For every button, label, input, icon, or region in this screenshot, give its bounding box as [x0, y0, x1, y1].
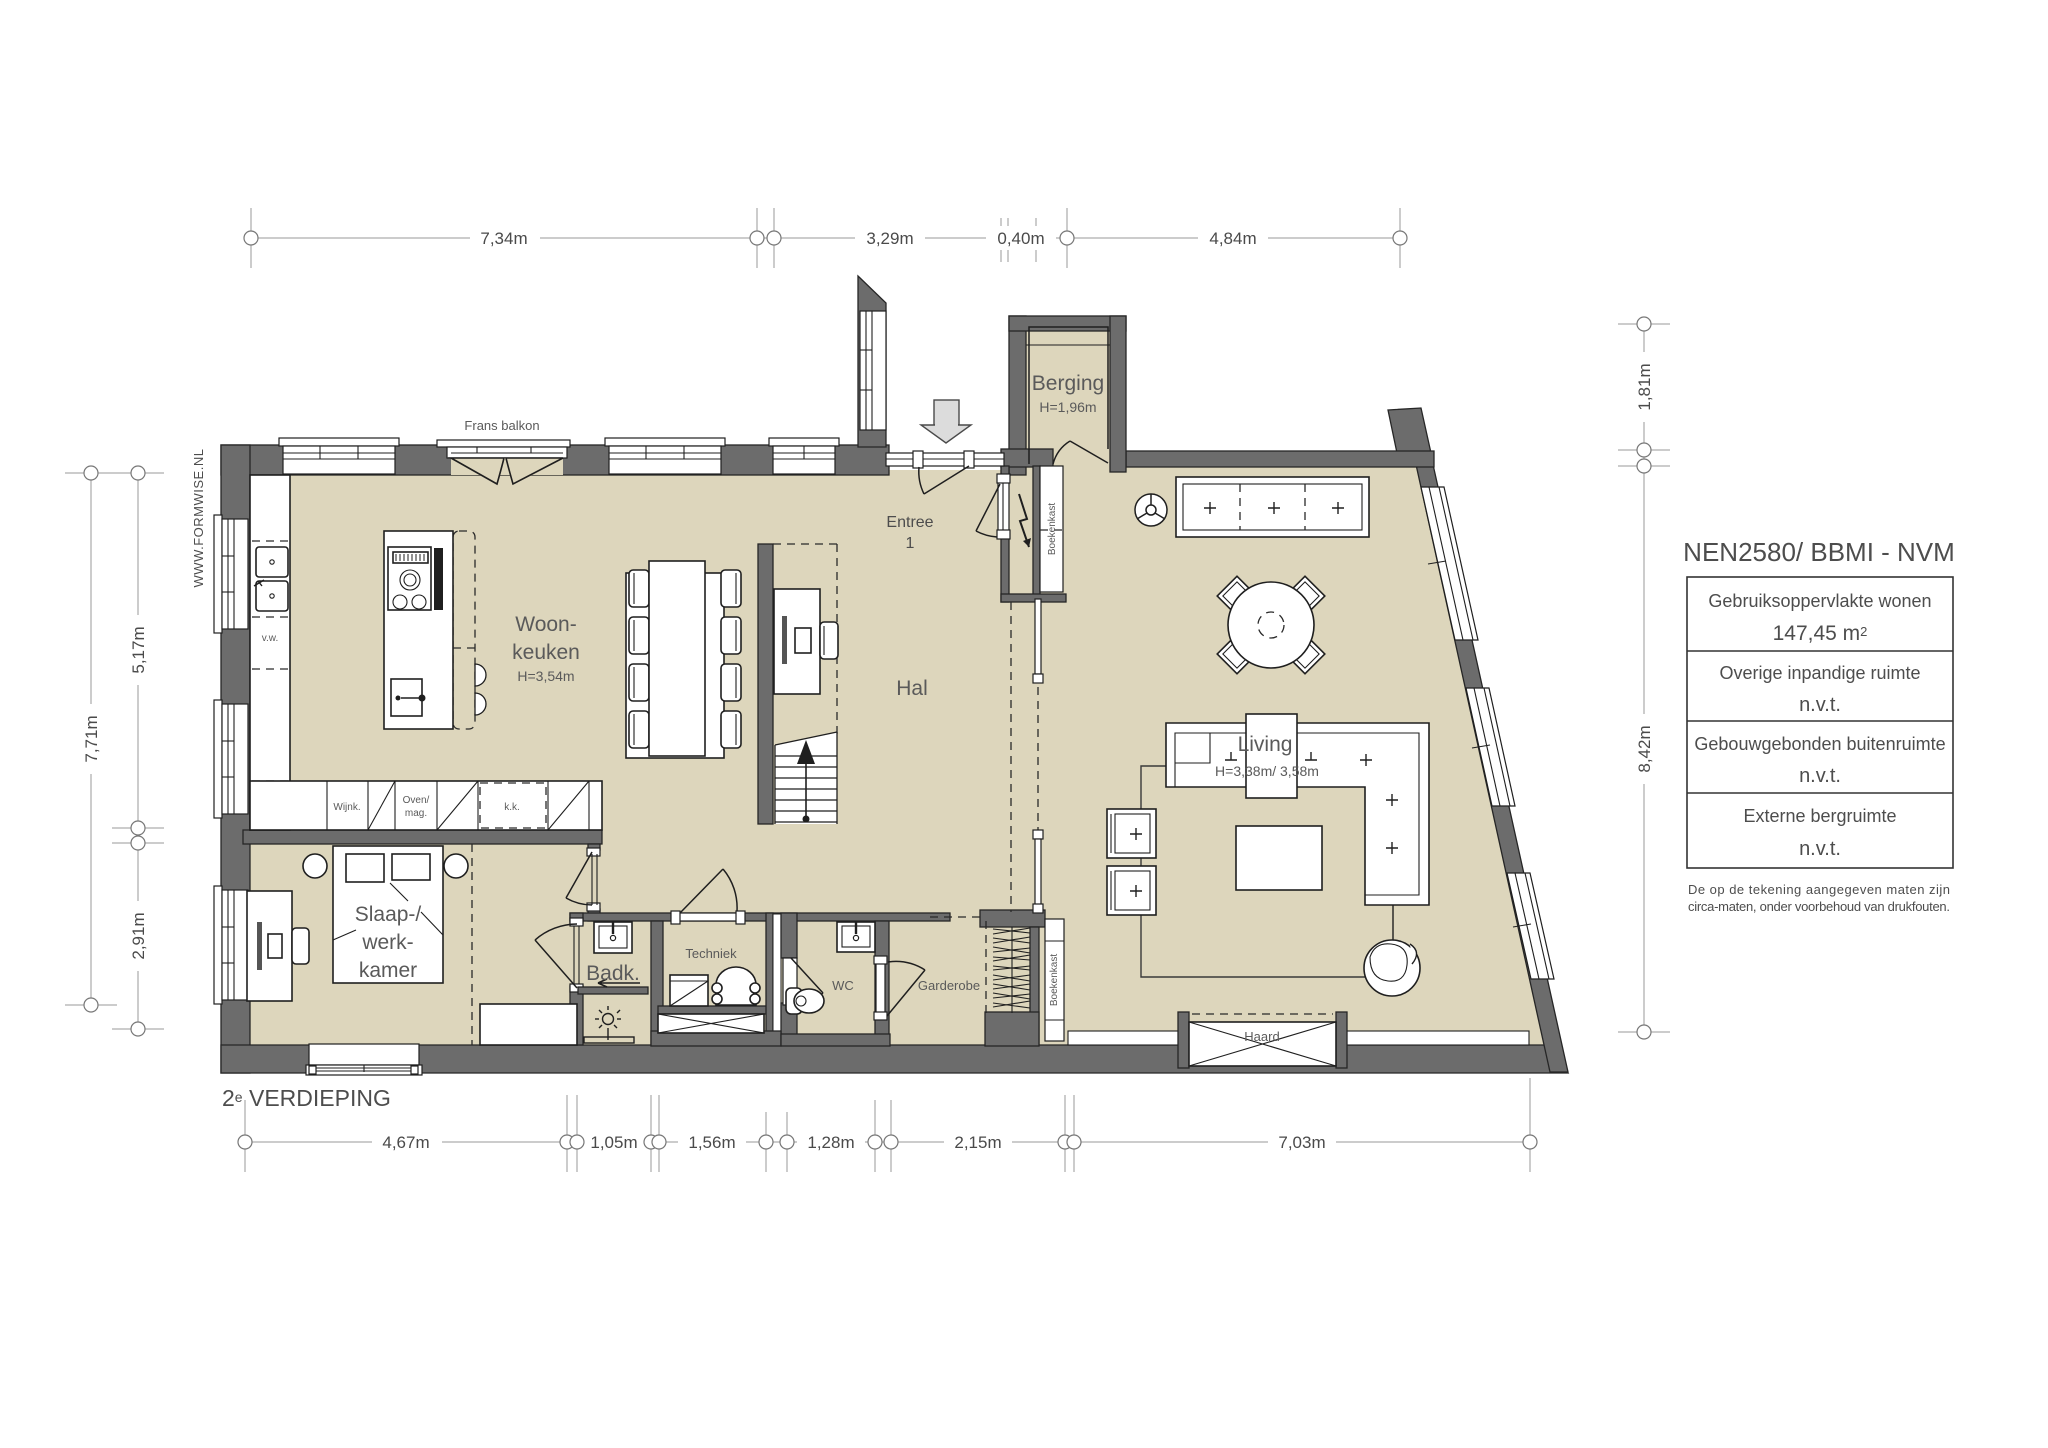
svg-text:H=3,38m/ 3,58m: H=3,38m/ 3,58m [1215, 763, 1319, 779]
svg-text:n.v.t.: n.v.t. [1799, 694, 1841, 716]
svg-text:Overige inpandige ruimte: Overige inpandige ruimte [1719, 663, 1920, 683]
svg-text:Externe bergruimte: Externe bergruimte [1743, 806, 1896, 826]
svg-text:7,03m: 7,03m [1278, 1133, 1325, 1152]
svg-text:3,29m: 3,29m [866, 229, 913, 248]
svg-text:7,71m: 7,71m [82, 715, 101, 762]
svg-text:1: 1 [906, 535, 915, 552]
svg-text:WC: WC [832, 978, 854, 993]
svg-text:4,67m: 4,67m [382, 1133, 429, 1152]
svg-text:4,84m: 4,84m [1209, 229, 1256, 248]
svg-text:Berging: Berging [1032, 372, 1104, 395]
svg-text:1,56m: 1,56m [688, 1133, 735, 1152]
svg-text:Gebruiksoppervlakte wonen: Gebruiksoppervlakte wonen [1708, 591, 1931, 611]
svg-text:v.w.: v.w. [262, 633, 278, 644]
svg-text:7,34m: 7,34m [480, 229, 527, 248]
svg-text:0,40m: 0,40m [997, 229, 1044, 248]
svg-text:Wijnk.: Wijnk. [333, 802, 360, 813]
svg-text:keuken: keuken [512, 641, 580, 664]
svg-text:Boekenkast: Boekenkast [1049, 954, 1060, 1006]
svg-text:Badk.: Badk. [586, 962, 640, 985]
svg-text:5,17m: 5,17m [129, 626, 148, 673]
svg-text:kamer: kamer [359, 959, 417, 982]
svg-text:Techniek: Techniek [685, 946, 737, 961]
svg-text:Haard: Haard [1244, 1029, 1279, 1044]
svg-text:NEN2580/ BBMI - NVM: NEN2580/ BBMI - NVM [1683, 537, 1955, 567]
svg-text:werk-: werk- [361, 931, 413, 954]
svg-text:8,42m: 8,42m [1635, 725, 1654, 772]
svg-text:2e VERDIEPING: 2e VERDIEPING [222, 1085, 391, 1111]
svg-text:Woon-: Woon- [515, 613, 576, 636]
svg-text:n.v.t.: n.v.t. [1799, 838, 1841, 860]
svg-text:2,91m: 2,91m [129, 912, 148, 959]
svg-text:Garderobe: Garderobe [918, 978, 980, 993]
svg-text:Living: Living [1238, 733, 1293, 756]
svg-text:Oven/: Oven/ [403, 795, 430, 806]
svg-text:1,81m: 1,81m [1635, 363, 1654, 410]
svg-text:Gebouwgebonden buitenruimte: Gebouwgebonden buitenruimte [1694, 734, 1945, 754]
svg-text:Entree: Entree [886, 514, 933, 531]
svg-text:2,15m: 2,15m [954, 1133, 1001, 1152]
svg-text:H=1,96m: H=1,96m [1039, 399, 1096, 415]
svg-text:Frans balkon: Frans balkon [464, 418, 539, 433]
svg-text:circa-maten, onder voorbehoud: circa-maten, onder voorbehoud van drukfo… [1688, 899, 1950, 914]
svg-text:Boekenkast: Boekenkast [1047, 503, 1058, 555]
svg-text:147,45 m2: 147,45 m2 [1773, 622, 1868, 645]
svg-text:De op de tekening aangegeven m: De op de tekening aangegeven maten zijn [1688, 882, 1950, 897]
svg-text:k.k.: k.k. [504, 802, 520, 813]
svg-text:Hal: Hal [896, 677, 928, 700]
svg-text:Slaap-/: Slaap-/ [355, 903, 422, 926]
svg-text:n.v.t.: n.v.t. [1799, 765, 1841, 787]
svg-text:mag.: mag. [405, 808, 427, 819]
svg-text:WWW.FORMWISE.NL: WWW.FORMWISE.NL [191, 449, 206, 588]
svg-text:H=3,54m: H=3,54m [517, 668, 574, 684]
svg-text:1,05m: 1,05m [590, 1133, 637, 1152]
svg-text:1,28m: 1,28m [807, 1133, 854, 1152]
